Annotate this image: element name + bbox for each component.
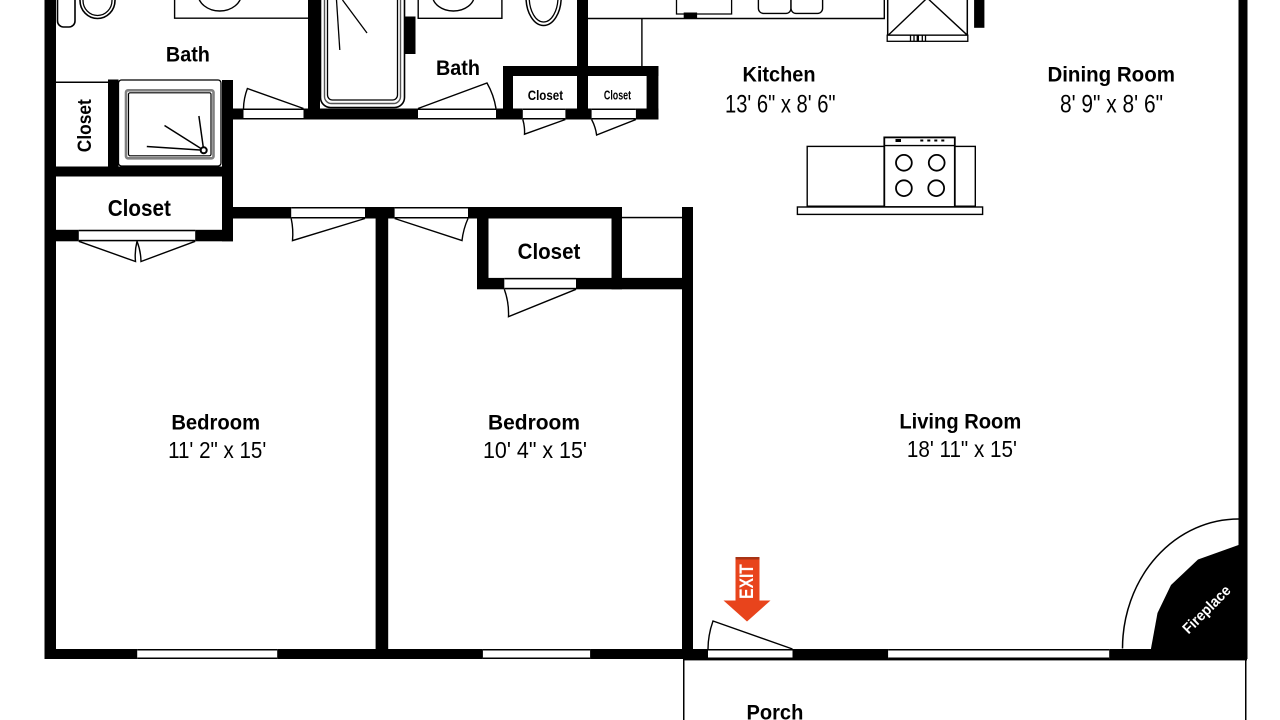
- svg-text:Kitchen: Kitchen: [742, 63, 815, 87]
- svg-text:Closet: Closet: [108, 195, 172, 221]
- svg-text:18' 11" x 15': 18' 11" x 15': [907, 436, 1017, 462]
- svg-text:8' 9" x 8' 6": 8' 9" x 8' 6": [1060, 90, 1163, 118]
- svg-text:Closet: Closet: [528, 88, 564, 103]
- svg-text:Porch: Porch: [746, 700, 803, 720]
- svg-text:Bath: Bath: [166, 43, 210, 67]
- svg-text:11' 2" x 15': 11' 2" x 15': [168, 437, 266, 463]
- svg-text:13' 6" x 8' 6": 13' 6" x 8' 6": [725, 90, 836, 118]
- svg-text:Closet: Closet: [518, 239, 581, 264]
- svg-text:Bedroom: Bedroom: [171, 411, 260, 435]
- svg-text:Closet: Closet: [74, 99, 96, 152]
- svg-text:EXIT: EXIT: [736, 564, 758, 599]
- svg-text:Dining Room: Dining Room: [1047, 63, 1175, 87]
- svg-text:Bedroom: Bedroom: [488, 411, 580, 435]
- svg-text:Bath: Bath: [436, 56, 480, 80]
- svg-text:10' 4" x 15': 10' 4" x 15': [483, 437, 587, 463]
- svg-text:Closet: Closet: [604, 89, 632, 103]
- svg-text:Living Room: Living Room: [899, 409, 1021, 433]
